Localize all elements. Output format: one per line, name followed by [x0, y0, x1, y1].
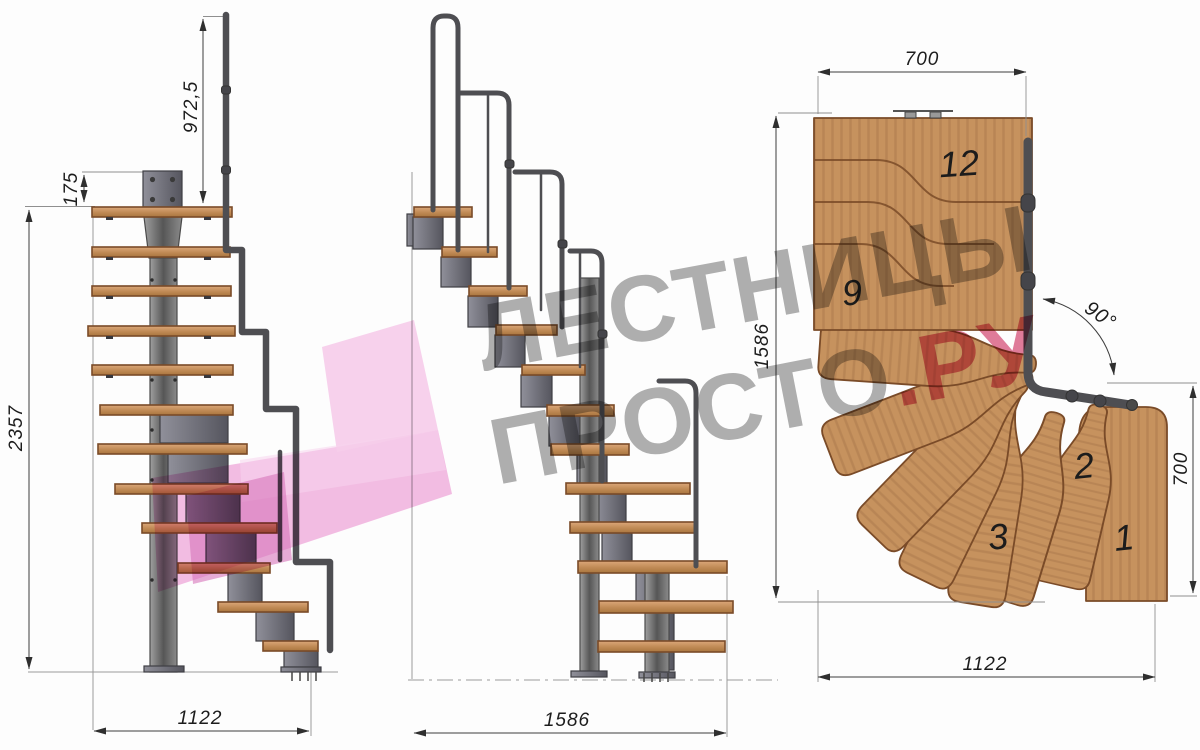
plan-dim-right-width: 700 [1171, 452, 1193, 487]
staircase-technical-drawing: 972,5 175 2357 1122 1586 700 1586 700 11… [0, 0, 1200, 750]
side-dim-length: 1586 [544, 710, 590, 732]
plan-dim-top-width: 700 [905, 49, 940, 71]
anchor-ticks [292, 672, 316, 681]
front-dim-plate: 175 [61, 172, 83, 207]
step-label-1: 1 [1112, 516, 1136, 560]
step-label-9: 9 [841, 271, 864, 314]
plan-view [776, 72, 1197, 682]
plan-treads-lower [817, 320, 1167, 609]
front-dim-total-height: 2357 [6, 405, 28, 451]
plan-handrail [1021, 142, 1138, 411]
front-dim-width: 1122 [178, 708, 223, 730]
plan-wall-bracket [893, 111, 953, 118]
front-top-mounting-plate [143, 171, 182, 207]
front-dim-rail-height: 972,5 [181, 81, 203, 134]
side-elevation-view [407, 16, 778, 737]
step-label-12: 12 [938, 142, 981, 187]
plan-dim-bottom-width: 1122 [963, 654, 1008, 676]
plan-dim-left-length: 1586 [752, 323, 774, 369]
step-label-3: 3 [986, 515, 1010, 559]
step-label-2: 2 [1072, 444, 1096, 488]
drawing-canvas [0, 0, 1200, 750]
